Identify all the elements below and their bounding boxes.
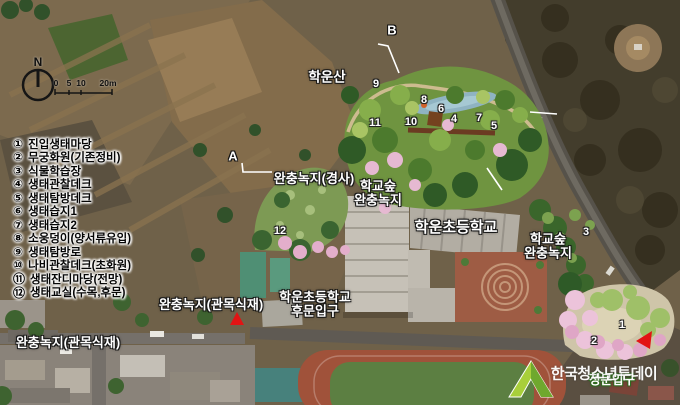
aerial-map: N 051020m ①진입생태마당②무궁화원(기존정비)③식물학습장④생태관찰데… [0, 0, 680, 405]
section-marker-a: A [228, 149, 237, 164]
map-label: 학교숲완충녹지 [354, 180, 402, 209]
site-number-6: 6 [438, 103, 444, 115]
map-label: 완충녹지(경사) [274, 172, 354, 186]
site-number-12: 12 [274, 225, 286, 237]
legend: ①진입생태마당②무궁화원(기존정비)③식물학습장④생태관찰데크⑤생태탐방데크⑥생… [13, 137, 131, 299]
compass-north-label: N [34, 55, 43, 69]
legend-item-number: ⑧ [13, 231, 23, 245]
legend-item-number: ④ [13, 177, 23, 191]
legend-item: ⑫생태교실(수목,후문) [13, 286, 131, 300]
scale-tick-label: 5 [67, 78, 72, 88]
site-number-7: 7 [476, 112, 482, 124]
legend-item-label: 생태교실(수목,후문) [30, 284, 126, 300]
scale-tick-label: 10 [76, 78, 85, 88]
legend-item-number: ⑥ [13, 204, 23, 218]
map-label: 학운초등학교후문입구 [279, 291, 351, 320]
map-label: 완충녹지(관목식재) [16, 336, 120, 350]
legend-item-number: ⑫ [13, 284, 25, 301]
legend-item-number: ③ [13, 164, 23, 178]
legend-item-number: ⑦ [13, 218, 23, 232]
scale-tick-label: 20m [99, 78, 116, 88]
map-label: 학운초등학교 [415, 220, 498, 237]
site-number-9: 9 [373, 78, 379, 90]
map-label: 학교숲완충녹지 [524, 233, 572, 262]
legend-item-number: ⑤ [13, 191, 23, 205]
site-number-2: 2 [591, 335, 597, 347]
site-number-4: 4 [451, 113, 457, 125]
watermark-text: 한국청소년투데이 [551, 363, 657, 384]
map-label: 완충녹지(관목식재) [159, 298, 263, 312]
section-marker-b: B [387, 23, 396, 38]
legend-item-number: ① [13, 137, 23, 151]
site-number-3: 3 [583, 226, 589, 238]
site-number-5: 5 [491, 120, 497, 132]
site-number-10: 10 [405, 116, 417, 128]
scale-tick-label: 0 [54, 78, 59, 88]
legend-item-number: ⑨ [13, 245, 23, 259]
site-number-11: 11 [369, 117, 381, 129]
legend-item-number: ② [13, 150, 23, 164]
site-number-8: 8 [421, 94, 427, 106]
map-label: 학운산 [308, 71, 345, 86]
site-number-1: 1 [619, 319, 625, 331]
